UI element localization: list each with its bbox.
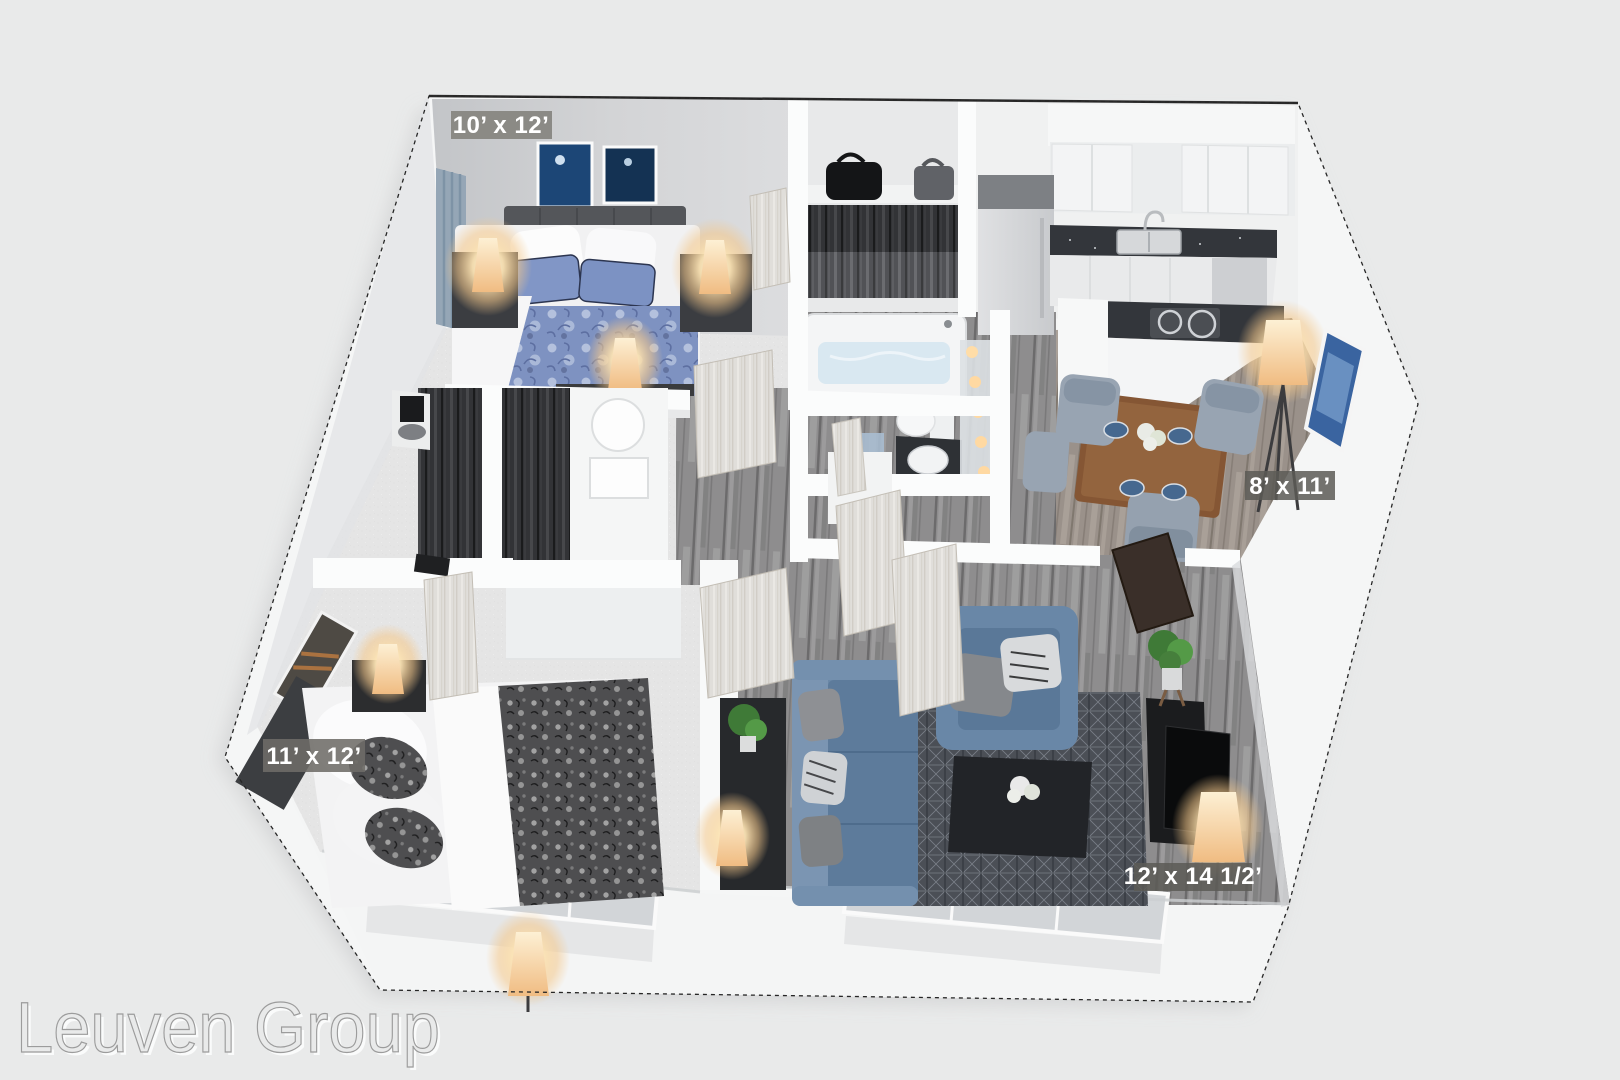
svg-text:12’ x 14 1/2’: 12’ x 14 1/2’ [1124,863,1263,890]
svg-text:11’ x 12’: 11’ x 12’ [266,743,361,770]
svg-text:10’ x 12’: 10’ x 12’ [453,112,550,139]
svg-text:Leuven Group: Leuven Group [16,989,440,1068]
svg-text:8’ x 11’: 8’ x 11’ [1249,473,1330,500]
